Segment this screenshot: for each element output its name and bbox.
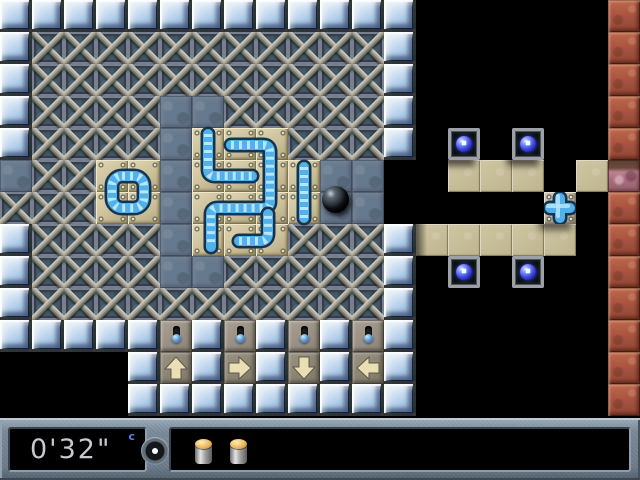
inventory-panel (169, 427, 631, 472)
pipe-layer (0, 0, 640, 480)
battery-icon (230, 445, 247, 464)
hub-dot-icon (152, 448, 158, 454)
pipe-ring-piece[interactable] (112, 176, 144, 208)
inventory-items (195, 441, 247, 464)
clock-key-hint: c (128, 430, 135, 443)
timer-panel: 0'32" c (8, 427, 147, 472)
divider-hub (141, 437, 169, 465)
battery-icon (195, 445, 212, 464)
corridor-shadow (416, 224, 427, 256)
game-screen: 0'32" c (0, 0, 640, 480)
timer-text: 0'32" (30, 434, 111, 465)
black-ball[interactable] (322, 186, 349, 213)
status-bar: 0'32" c (0, 417, 640, 480)
